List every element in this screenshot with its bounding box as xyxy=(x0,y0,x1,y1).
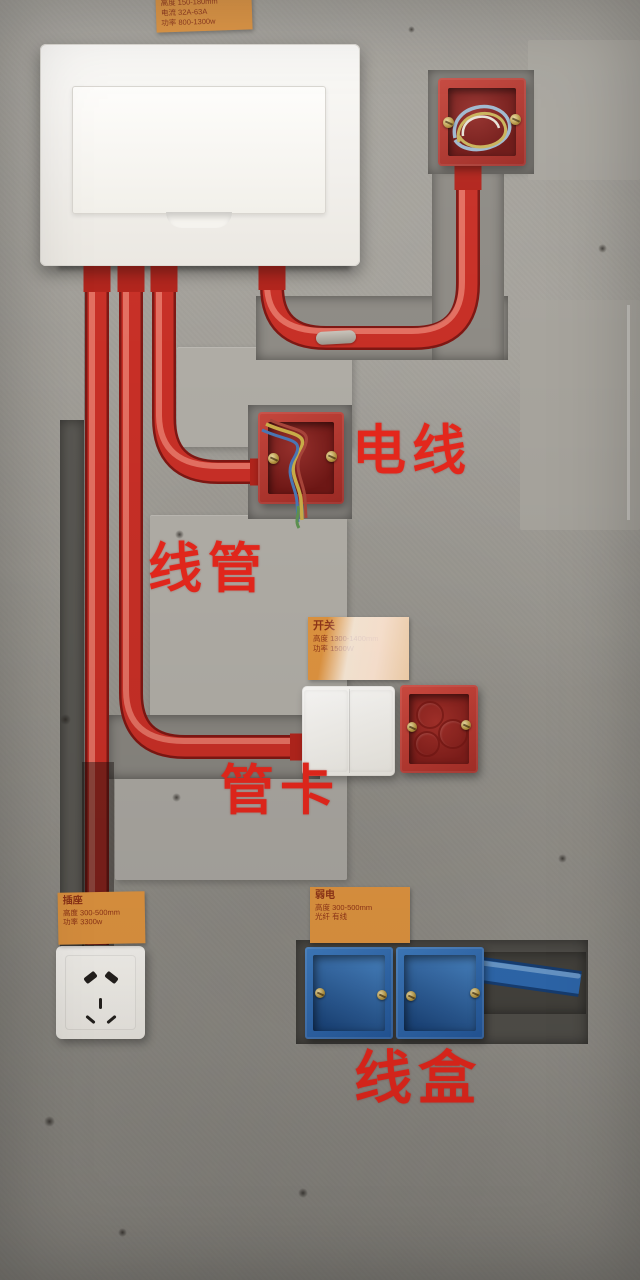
annotation-wire-box: 线盒 xyxy=(354,1050,482,1108)
spec-sticker-weak-current: 弱电 高度 300-500mm 光纤 有线 xyxy=(310,887,410,943)
sticker-line-power: 功率 1500W xyxy=(313,644,404,654)
wall-patch xyxy=(520,300,640,530)
spec-sticker-switch: 开关 高度 1300-1400mm 功率 1500W xyxy=(308,617,409,680)
screw-icon xyxy=(443,117,454,128)
wall-chase-vertical xyxy=(60,420,84,950)
wall-chase-shadow xyxy=(84,262,94,952)
cable-stub xyxy=(316,330,357,345)
wall-hole xyxy=(298,1188,308,1198)
distribution-box-handle xyxy=(166,212,232,228)
screw-icon xyxy=(268,453,279,464)
sticker-line-power: 功率 3300w xyxy=(63,917,140,928)
switch-seam xyxy=(349,689,350,774)
spec-sticker-panel: 高度 150-180mm 电流 32A-63A 功率 800-1300w xyxy=(155,0,252,33)
annotation-conduit: 线管 xyxy=(148,542,268,596)
sticker-line-height: 高度 1300-1400mm xyxy=(313,634,404,644)
sticker-title: 开关 xyxy=(313,620,404,634)
wall-hole xyxy=(118,1228,127,1237)
switch-rocker-right xyxy=(349,690,393,773)
annotation-wire: 电线 xyxy=(352,424,472,478)
wall-patch xyxy=(528,40,640,180)
switch-rocker-left xyxy=(304,690,348,773)
screw-icon xyxy=(470,988,480,998)
screw-icon xyxy=(461,720,471,730)
power-socket xyxy=(56,946,145,1039)
wall-hole xyxy=(60,714,71,725)
photo-electrical-rough-in-wall: 高度 150-180mm 电流 32A-63A 功率 800-1300w 开关 … xyxy=(0,0,640,1280)
annotation-pipe-clamp: 管卡 xyxy=(220,764,340,818)
wall-hole xyxy=(408,26,415,33)
screw-icon xyxy=(406,991,416,1001)
screw-icon xyxy=(326,451,337,462)
slab-edge-highlight xyxy=(627,305,630,520)
wall-hole xyxy=(172,793,181,802)
distribution-box xyxy=(40,44,360,266)
knockout-circle xyxy=(414,731,440,757)
wall-hole xyxy=(44,1116,55,1127)
wall-hole xyxy=(175,530,184,539)
screw-icon xyxy=(315,988,325,998)
wall-recess-blue-conduit xyxy=(478,952,586,1014)
sticker-line-media: 光纤 有线 xyxy=(315,912,405,922)
sticker-title: 弱电 xyxy=(315,890,405,903)
screw-icon xyxy=(407,722,417,732)
distribution-box-cover xyxy=(72,86,326,214)
wall-hole xyxy=(558,854,567,863)
socket-faceplate xyxy=(65,955,136,1030)
screw-icon xyxy=(510,114,521,125)
wall-hole xyxy=(598,244,607,253)
spec-sticker-socket: 插座 高度 300-500mm 功率 3300w xyxy=(58,891,146,945)
sticker-line-height: 高度 300-500mm xyxy=(315,903,405,913)
screw-icon xyxy=(377,990,387,1000)
junction-box-cavity xyxy=(448,88,516,156)
socket-slot xyxy=(99,998,102,1009)
wall-chase-vertical-right xyxy=(432,160,504,360)
